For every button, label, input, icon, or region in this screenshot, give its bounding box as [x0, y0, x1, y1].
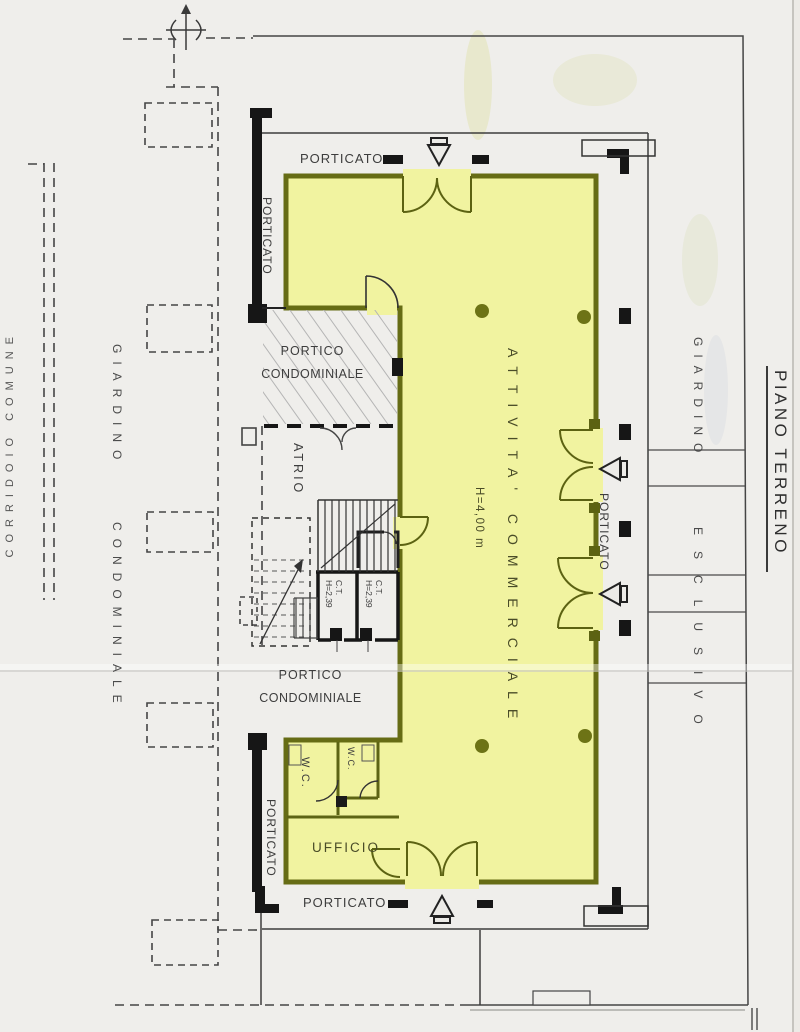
- label-piano-terreno: PIANO TERRENO: [770, 370, 790, 556]
- commercial-area-highlight: [286, 169, 603, 889]
- label-portico-2-line2: CONDOMINIALE: [253, 691, 368, 705]
- label-attivita-commerciale: ATTIVITA' COMMERCIALE: [505, 348, 521, 728]
- label-giardino-condominiale-word1: GIARDINO: [110, 344, 124, 467]
- planter-boxes: [145, 103, 218, 965]
- label-ct-room-1: C.T. H=2,39: [324, 580, 344, 608]
- label-portico-1-line1: PORTICO: [255, 344, 370, 358]
- piano-terreno-underline: [766, 366, 768, 572]
- label-ct-room-2: C.T. H=2,39: [364, 580, 384, 608]
- label-porticato-left-bottom: PORTICATO: [264, 799, 278, 877]
- label-portico-2-line1: PORTICO: [253, 668, 368, 682]
- label-wc-2: W.C.: [346, 747, 356, 771]
- label-giardino-condominiale-word2: CONDOMINIALE: [110, 522, 124, 711]
- label-porticato-top: PORTICATO: [300, 151, 383, 166]
- label-giardino-esclusivo-word1: GIARDINO: [691, 337, 705, 460]
- floor-plan-drawing: [0, 0, 800, 1032]
- label-altezza-locale: H=4,00 m: [473, 487, 485, 549]
- floor-plan-page: PORTICATO PORTICATO PORTICO CONDOMINIALE…: [0, 0, 800, 1032]
- label-ct-2-altezza: H=2,39: [364, 580, 374, 608]
- label-atrio: ATRIO: [291, 443, 305, 495]
- label-porticato-right: PORTICATO: [597, 493, 611, 571]
- label-corridoio-comune: CORRIDOIO COMUNE: [4, 330, 16, 558]
- label-porticato-bottom: PORTICATO: [303, 895, 386, 910]
- north-arrow-icon: [166, 4, 206, 50]
- label-wc-1: W.C.: [299, 757, 311, 789]
- label-ct-1: C.T.: [334, 580, 344, 608]
- label-portico-condominiale-1: PORTICO CONDOMINIALE: [255, 344, 370, 381]
- label-ct-1-altezza: H=2,39: [324, 580, 334, 608]
- label-ufficio: UFFICIO: [312, 840, 380, 855]
- label-ct-2: C.T.: [374, 580, 384, 608]
- label-portico-1-line2: CONDOMINIALE: [255, 367, 370, 381]
- label-portico-condominiale-2: PORTICO CONDOMINIALE: [253, 668, 368, 705]
- label-giardino-esclusivo-word2: ESCLUSIVO: [691, 527, 705, 740]
- label-porticato-left-top: PORTICATO: [260, 197, 274, 275]
